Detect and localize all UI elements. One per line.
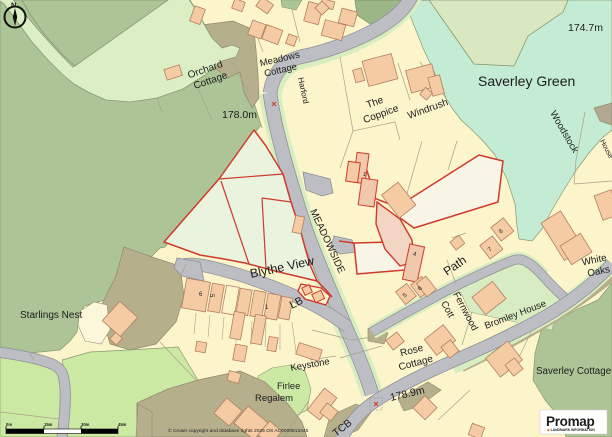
- svg-text:Saverley Cottage: Saverley Cottage: [536, 366, 612, 377]
- svg-text:© Crown copyright and database: © Crown copyright and database rights 20…: [168, 427, 309, 434]
- svg-text:174.7m: 174.7m: [568, 22, 603, 34]
- svg-text:Promap: Promap: [546, 414, 595, 429]
- svg-text:Firlee: Firlee: [277, 381, 300, 391]
- svg-text:N: N: [11, 1, 16, 10]
- svg-text:Regalem: Regalem: [255, 393, 293, 404]
- svg-text:0m: 0m: [6, 422, 12, 427]
- svg-text:45m: 45m: [118, 422, 127, 427]
- svg-text:30m: 30m: [81, 422, 90, 427]
- svg-text:Starlings Nest: Starlings Nest: [20, 310, 82, 321]
- svg-text:Saverley Green: Saverley Green: [478, 73, 575, 89]
- svg-text:15m: 15m: [44, 422, 53, 427]
- svg-text:◆ LANDMARK INFORMATION: ◆ LANDMARK INFORMATION: [546, 428, 595, 432]
- svg-text:178.0m: 178.0m: [222, 109, 257, 121]
